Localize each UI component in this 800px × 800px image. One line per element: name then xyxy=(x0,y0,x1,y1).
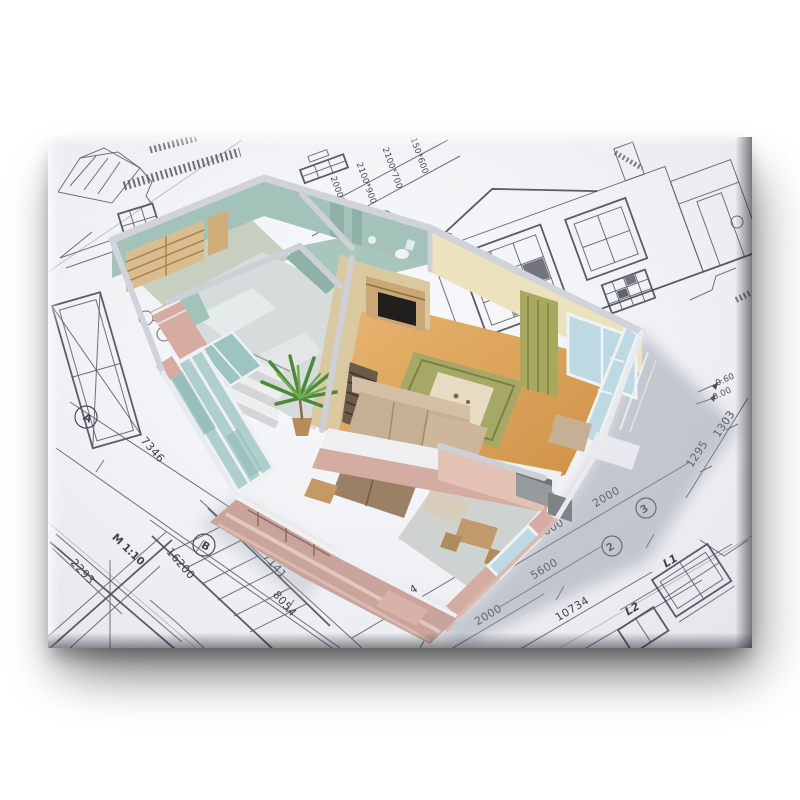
braced-frame xyxy=(52,292,141,448)
dimension-label: 16200 xyxy=(164,545,198,581)
wall-pilaster xyxy=(352,205,362,246)
side-table xyxy=(304,478,338,504)
schedule-detail xyxy=(297,145,348,183)
dimension-label: 2293 xyxy=(68,556,98,587)
sink xyxy=(368,236,376,244)
printed-image: 7346 16200 7141 8054 2293 M 1:10 3734 20… xyxy=(48,137,752,648)
curtains xyxy=(520,290,558,398)
window-spec: 2100*700 xyxy=(380,146,404,191)
window-spec: 2100*900 xyxy=(354,161,378,206)
canvas-print: 7346 16200 7141 8054 2293 M 1:10 3734 20… xyxy=(48,137,752,648)
product-photo: 7346 16200 7141 8054 2293 M 1:10 3734 20… xyxy=(0,0,800,800)
window-detail-1 xyxy=(652,544,735,622)
svg-text:B: B xyxy=(199,539,212,553)
window-spec: 2150*600 xyxy=(406,137,430,176)
scale-label: M 1:10 xyxy=(109,532,146,569)
level-mark: 0.60 xyxy=(714,372,736,389)
line-label: L1 xyxy=(661,552,680,571)
